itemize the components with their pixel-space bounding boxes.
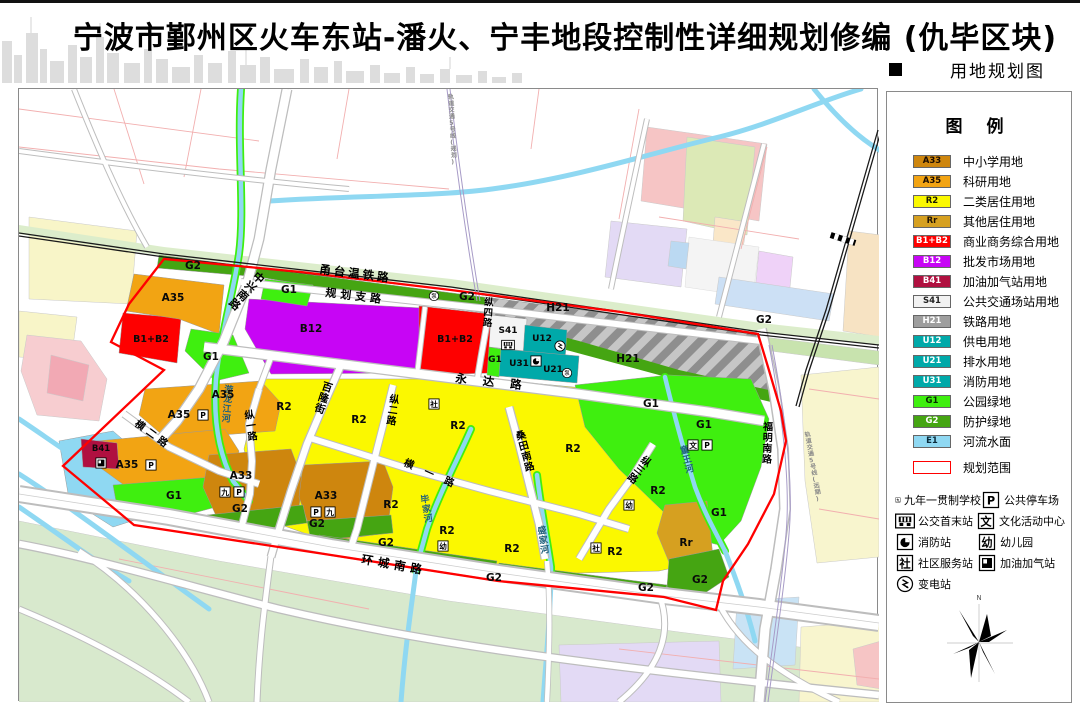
幼-box-icon: 幼 <box>980 534 995 549</box>
zone-label-B1+B2: B1+B2 <box>133 334 169 345</box>
legend-symbol-公共停车场: P公共停车场 <box>981 490 1065 510</box>
legend-item-S41: S41公共交通场站用地 <box>887 291 1071 311</box>
legend-label: 其他居住用地 <box>963 213 1035 230</box>
legend-item-B12: B12批发市场用地 <box>887 251 1071 271</box>
legend-label: 供电用地 <box>963 333 1011 350</box>
zone-label-R2: R2 <box>607 546 622 558</box>
九-box-icon: 九 <box>325 507 335 517</box>
zone-label-G2: G2 <box>638 582 654 594</box>
svg-text:九: 九 <box>220 487 229 497</box>
legend-symbol-label: 公共停车场 <box>1004 492 1059 508</box>
zone-label-U31: U31 <box>509 359 529 369</box>
文-box-icon: 文 <box>688 440 698 450</box>
zone-label-A33: A33 <box>315 490 338 502</box>
zone-label-U12: U12 <box>532 334 552 344</box>
fire-icon <box>531 356 541 366</box>
sub-icon <box>555 341 565 351</box>
legend-symbol-label: 幼儿园 <box>1000 534 1033 550</box>
幼-box-icon: 幼 <box>624 500 634 510</box>
legend-swatch-A35: A35 <box>913 175 951 188</box>
legend-symbol-社区服务站: 社社区服务站 <box>895 553 977 573</box>
zone-label-G1: G1 <box>281 284 297 296</box>
zone-label-G1: G1 <box>203 351 219 363</box>
legend-item-U12: U12供电用地 <box>887 331 1071 351</box>
svg-text:社: 社 <box>429 399 438 409</box>
legend-item-G2: G2防护绿地 <box>887 411 1071 431</box>
legend-item-A33: A33中小学用地 <box>887 151 1071 171</box>
legend-swatch-S41: S41 <box>913 295 951 308</box>
legend-symbol-label: 文化活动中心 <box>999 513 1065 529</box>
legend-item-R2: R2二类居住用地 <box>887 191 1071 211</box>
zone-label-R2: R2 <box>383 499 398 511</box>
svg-text:P: P <box>236 488 242 497</box>
fire-icon <box>898 534 913 549</box>
zone-label-S41: S41 <box>498 326 517 336</box>
legend-swatch-G2: G2 <box>913 415 951 428</box>
legend-label: 批发市场用地 <box>963 253 1035 270</box>
zone-label-G2: G2 <box>459 291 475 303</box>
zone-label-B1+B2: B1+B2 <box>437 334 473 345</box>
legend-swatch-U21: U21 <box>913 355 951 368</box>
legend-symbol-label: 公交首末站 <box>918 513 973 529</box>
社-box-icon: 社 <box>898 555 913 570</box>
legend-label: 商业商务综合用地 <box>963 233 1059 250</box>
社-box-icon: 社 <box>591 543 601 553</box>
svg-text:社: 社 <box>898 556 911 570</box>
legend-label: 排水用地 <box>963 353 1011 370</box>
legend-label: 铁路用地 <box>963 313 1011 330</box>
zone-label-G1: G1 <box>711 507 727 519</box>
legend-swatch-H21: H21 <box>913 315 951 328</box>
svg-text:文: 文 <box>980 514 992 528</box>
legend-symbol-label: 消防站 <box>918 534 951 550</box>
page: 宁波市鄞州区火车东站-潘火、宁丰地段控制性详细规划修编 (仇毕区块) 用地规划图 <box>0 0 1080 708</box>
legend-label: 二类居住用地 <box>963 193 1035 210</box>
svg-text:P: P <box>200 411 206 420</box>
legend-label: 中小学用地 <box>963 153 1023 170</box>
legend-symbol-加油加气站: 加油加气站 <box>977 553 1065 573</box>
legend-item-B1+B2: B1+B2商业商务综合用地 <box>887 231 1071 251</box>
svg-text:社: 社 <box>591 543 600 553</box>
legend-items: A33中小学用地A35科研用地R2二类居住用地Rr其他居住用地B1+B2商业商务… <box>887 151 1071 451</box>
zone-label-A33: A33 <box>230 470 253 482</box>
black-square-bullet-icon <box>889 63 902 76</box>
road-label-轨道交通5号线(规划): 轨道交通5号线(规划) <box>448 93 458 166</box>
bus-icon <box>502 340 515 349</box>
zone-label-G1: G1 <box>166 490 182 502</box>
九-box-icon: 九 <box>220 487 230 497</box>
legend-symbol-九年一贯制学校: 九九年一贯制学校 <box>895 490 981 510</box>
legend-panel: 图 例 A33中小学用地A35科研用地R2二类居住用地Rr其他居住用地B1+B2… <box>886 91 1072 703</box>
zone-label-G2: G2 <box>232 503 248 515</box>
zone-label-B12: B12 <box>300 323 323 335</box>
legend-label: 消防用地 <box>963 373 1011 390</box>
svg-text:九: 九 <box>325 507 334 517</box>
legend-symbol-row: 九九年一贯制学校P公共停车场 <box>895 489 1065 510</box>
zone-label-R2: R2 <box>504 543 519 555</box>
legend-symbol-row: 社社区服务站加油加气站 <box>895 552 1065 573</box>
legend-item-E1: E1河流水面 <box>887 431 1071 451</box>
zone-label-G2: G2 <box>185 260 201 272</box>
zone-label-B41: B41 <box>92 444 110 454</box>
zone-label-R2: R2 <box>276 401 291 413</box>
legend-swatch-E1: E1 <box>913 435 951 448</box>
legend-swatch-B41: B41 <box>913 275 951 288</box>
zone-label-G1: G1 <box>488 355 502 365</box>
legend-item-U31: U31消防用地 <box>887 371 1071 391</box>
legend-symbol-文化活动中心: 文文化活动中心 <box>976 511 1065 531</box>
compass-n-label: N <box>976 594 981 602</box>
svg-text:泵: 泵 <box>564 370 570 377</box>
legend-label: 公园绿地 <box>963 393 1011 410</box>
legend-swatch-U12: U12 <box>913 335 951 348</box>
legend-symbol-公交首末站: 公交首末站 <box>895 511 976 531</box>
P-box-icon: P <box>198 410 208 420</box>
legend-symbols: 九九年一贯制学校P公共停车场公交首末站文文化活动中心消防站幼幼儿园社社区服务站加… <box>887 489 1071 594</box>
bus-icon <box>896 514 915 528</box>
legend-label: 防护绿地 <box>963 413 1011 430</box>
legend-swatch-Rr: Rr <box>913 215 951 228</box>
legend-boundary-row: 规划范围 <box>887 457 1071 477</box>
legend-label: 加油加气站用地 <box>963 273 1047 290</box>
zone-label-G1: G1 <box>696 419 712 431</box>
P-box-icon: P <box>234 487 244 497</box>
zone-label-G2: G2 <box>692 574 708 586</box>
legend-label: 河流水面 <box>963 433 1011 450</box>
svg-text:幼: 幼 <box>982 535 993 549</box>
legend-item-U21: U21排水用地 <box>887 351 1071 371</box>
P-box-icon: P <box>311 507 321 517</box>
svg-text:文: 文 <box>689 440 697 450</box>
boundary-swatch <box>913 461 951 474</box>
svg-text:P: P <box>148 461 154 470</box>
legend-title: 图 例 <box>887 112 1071 137</box>
sub-icon <box>898 576 913 591</box>
zone-label-A35: A35 <box>162 292 185 304</box>
pump-icon: 泵 <box>429 291 438 300</box>
zone-label-R2: R2 <box>450 420 465 432</box>
legend-swatch-U31: U31 <box>913 375 951 388</box>
九-box-icon: 九 <box>895 497 900 502</box>
map-canvas: 甬台温铁路规划支路永达路环城南路中兴南路百隆街纵一路横二路横一路纵二路桑田南路纵… <box>19 89 879 702</box>
svg-text:九: 九 <box>895 497 900 502</box>
legend-symbol-label: 九年一贯制学校 <box>904 492 981 508</box>
zone-label-R2: R2 <box>565 443 580 455</box>
社-box-icon: 社 <box>429 399 439 409</box>
zone-label-H21: H21 <box>546 302 569 314</box>
zone-label-R2: R2 <box>351 414 366 426</box>
svg-text:幼: 幼 <box>625 500 633 510</box>
legend-symbol-label: 加油加气站 <box>1000 555 1055 571</box>
road-label-福明南路: 福明南路 <box>761 420 775 466</box>
legend-symbol-幼儿园: 幼幼儿园 <box>977 532 1065 552</box>
legend-swatch-G1: G1 <box>913 395 951 408</box>
svg-text:泵: 泵 <box>431 293 437 300</box>
boundary-label: 规划范围 <box>963 459 1011 476</box>
legend-label: 公共交通场站用地 <box>963 293 1059 310</box>
zone-label-G2: G2 <box>486 572 502 584</box>
legend-swatch-B12: B12 <box>913 255 951 268</box>
zone-label-A35: A35 <box>116 459 139 471</box>
gas-icon <box>96 458 106 468</box>
zone-label-G2: G2 <box>756 314 772 326</box>
zone-label-H21: H21 <box>616 353 639 365</box>
legend-item-G1: G1公园绿地 <box>887 391 1071 411</box>
文-box-icon: 文 <box>979 513 994 528</box>
legend-symbol-row: 公交首末站文文化活动中心 <box>895 510 1065 531</box>
map-type-label: 用地规划图 <box>950 57 1045 82</box>
P-box-icon: P <box>984 492 999 507</box>
gas-icon <box>980 555 995 570</box>
P-box-icon: P <box>702 440 712 450</box>
zone-label-R2: R2 <box>439 525 454 537</box>
zone-label-G2: G2 <box>309 518 325 530</box>
zone-label-A35: A35 <box>168 409 191 421</box>
compass-rose: N <box>929 590 1029 694</box>
map-type-row: 用地规划图 <box>889 57 1045 82</box>
legend-item-H21: H21铁路用地 <box>887 311 1071 331</box>
幼-box-icon: 幼 <box>438 541 448 551</box>
legend-item-Rr: Rr其他居住用地 <box>887 211 1071 231</box>
legend-symbol-label: 社区服务站 <box>918 555 973 571</box>
svg-text:P: P <box>987 494 995 507</box>
legend-item-A35: A35科研用地 <box>887 171 1071 191</box>
zone-label-U21: U21 <box>543 365 563 375</box>
zone-label-R2: R2 <box>650 485 665 497</box>
zone-label-A35: A35 <box>212 389 235 401</box>
legend-item-B41: B41加油加气站用地 <box>887 271 1071 291</box>
svg-text:幼: 幼 <box>439 541 447 551</box>
zone-label-G1: G1 <box>643 398 659 410</box>
legend-label: 科研用地 <box>963 173 1011 190</box>
P-box-icon: P <box>146 460 156 470</box>
zone-label-Rr: Rr <box>679 537 693 549</box>
legend-swatch-R2: R2 <box>913 195 951 208</box>
legend-swatch-A33: A33 <box>913 155 951 168</box>
legend-swatch-B1+B2: B1+B2 <box>913 235 951 248</box>
svg-text:P: P <box>313 508 319 517</box>
legend-symbol-row: 消防站幼幼儿园 <box>895 531 1065 552</box>
planning-map: 甬台温铁路规划支路永达路环城南路中兴南路百隆街纵一路横二路横一路纵二路桑田南路纵… <box>18 88 878 701</box>
pump-icon: 泵 <box>562 368 571 377</box>
page-title: 宁波市鄞州区火车东站-潘火、宁丰地段控制性详细规划修编 (仇毕区块) <box>60 13 1070 57</box>
legend-symbol-消防站: 消防站 <box>895 532 977 552</box>
zone-label-G2: G2 <box>378 537 394 549</box>
svg-text:P: P <box>704 441 710 450</box>
